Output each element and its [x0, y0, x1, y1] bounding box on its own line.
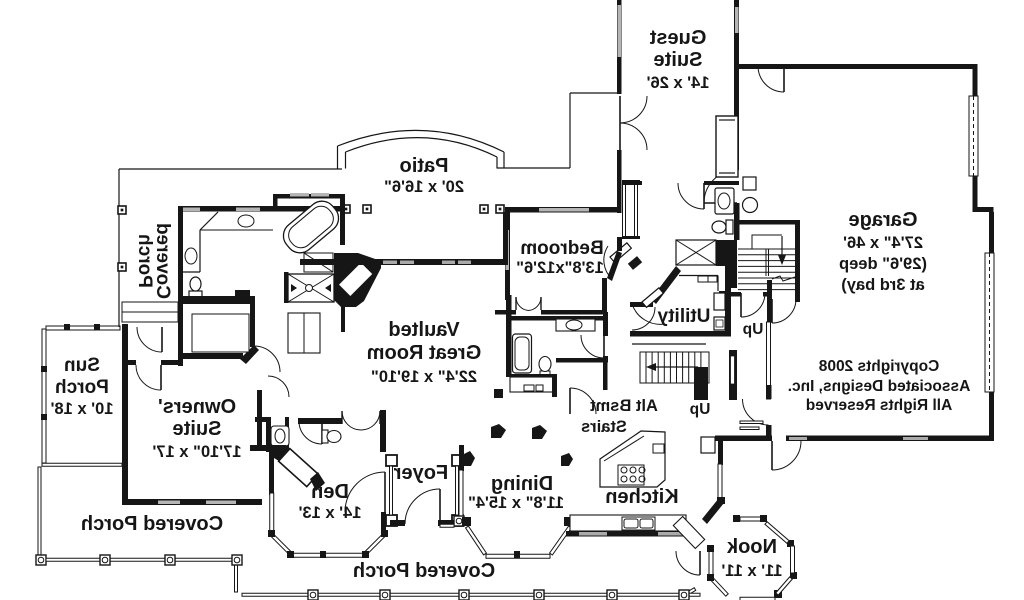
- svg-text:Porch: Porch: [134, 234, 155, 288]
- svg-text:Sun: Sun: [64, 355, 100, 376]
- svg-text:Up: Up: [743, 321, 764, 338]
- svg-text:Patio: Patio: [400, 155, 449, 177]
- svg-text:Porch: Porch: [55, 377, 109, 398]
- svg-text:20' x 16'6": 20' x 16'6": [384, 178, 464, 196]
- svg-text:Utility: Utility: [657, 306, 710, 327]
- svg-text:Suite: Suite: [654, 49, 703, 71]
- svg-text:Great Room: Great Room: [367, 342, 481, 364]
- svg-text:Associated Designs, Inc.: Associated Designs, Inc.: [788, 378, 971, 395]
- svg-text:10' x 18': 10' x 18': [50, 400, 113, 418]
- svg-text:Bedroom: Bedroom: [520, 238, 603, 259]
- svg-text:Vaulted: Vaulted: [388, 319, 459, 341]
- svg-text:Dining: Dining: [491, 473, 553, 495]
- svg-text:Stairs: Stairs: [581, 418, 627, 436]
- svg-text:(29'6" deep: (29'6" deep: [839, 255, 927, 273]
- svg-text:17'10" x 17': 17'10" x 17': [152, 443, 241, 461]
- svg-text:Foyer: Foyer: [394, 462, 449, 484]
- svg-text:14' x 26': 14' x 26': [646, 74, 709, 92]
- svg-text:Suite: Suite: [173, 418, 222, 440]
- svg-text:13'8"x12'6": 13'8"x12'6": [516, 259, 604, 277]
- svg-text:Owners': Owners': [158, 396, 236, 418]
- svg-text:Kitchen: Kitchen: [605, 486, 678, 508]
- svg-text:11' x 11': 11' x 11': [721, 562, 782, 580]
- svg-text:Nook: Nook: [726, 536, 777, 558]
- svg-text:Covered Porch: Covered Porch: [353, 560, 495, 582]
- svg-text:27'4" x 46': 27'4" x 46': [843, 234, 923, 252]
- svg-text:Covered Porch: Covered Porch: [81, 513, 223, 535]
- svg-text:Garage: Garage: [849, 209, 918, 231]
- svg-text:22'4" x 19'10": 22'4" x 19'10": [371, 368, 477, 386]
- svg-text:14' x 13': 14' x 13': [298, 504, 361, 522]
- svg-text:Copyrights 2008: Copyrights 2008: [818, 358, 939, 375]
- svg-text:Up: Up: [690, 401, 711, 418]
- svg-text:11'8" x 15'4": 11'8" x 15'4": [468, 494, 564, 512]
- svg-text:All Rights Reserved: All Rights Reserved: [806, 397, 952, 414]
- svg-text:Alt Bsmt: Alt Bsmt: [590, 397, 658, 415]
- svg-text:at 3rd bay): at 3rd bay): [841, 276, 924, 294]
- svg-text:Guest: Guest: [649, 27, 706, 49]
